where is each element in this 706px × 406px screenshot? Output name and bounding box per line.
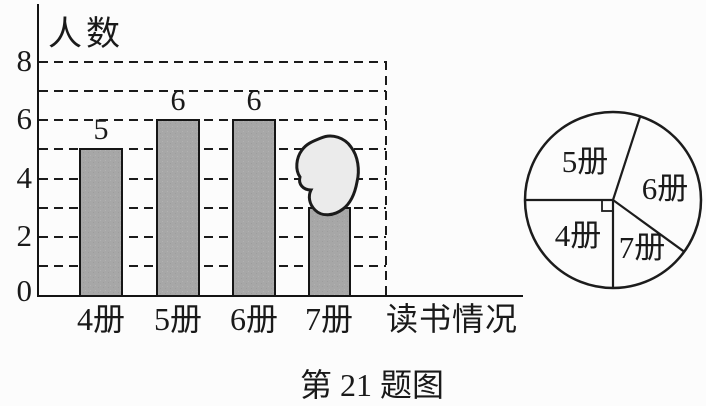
- x-axis-title: 读书情况: [386, 301, 518, 337]
- y-tick-6: 6: [0, 104, 32, 134]
- bar-4ce: [79, 148, 123, 297]
- gridline-8: [39, 61, 386, 63]
- pie-label-4ce: 4册: [555, 218, 602, 253]
- pie-label-5ce: 5册: [562, 144, 609, 179]
- figure-question-21: 人数 8 6 4 2 0 5 6 6 4册 5册 6册 7册 读书情况: [0, 0, 706, 406]
- bar-value-5ce: 6: [148, 86, 208, 116]
- gridline-7: [39, 90, 386, 92]
- pie-label-6ce: 6册: [642, 171, 689, 206]
- grid-right-boundary-dashed: [385, 61, 387, 297]
- y-tick-4: 4: [0, 163, 32, 193]
- ink-blot-icon: [288, 132, 368, 229]
- bar-value-4ce: 5: [71, 115, 131, 145]
- y-axis-title: 人数: [48, 6, 124, 55]
- y-tick-2: 2: [0, 221, 32, 251]
- pie-label-7ce: 7册: [619, 230, 666, 265]
- figure-caption: 第 21 题图: [252, 360, 492, 406]
- y-tick-8: 8: [0, 46, 32, 76]
- bar-5ce: [156, 119, 200, 297]
- pie-chart: 5册 6册 7册 4册: [521, 108, 705, 292]
- cat-label-7ce: 7册: [284, 301, 374, 337]
- bar-6ce: [232, 119, 276, 297]
- y-axis-line: [37, 4, 39, 297]
- bar-value-6ce: 6: [224, 86, 284, 116]
- y-tick-0: 0: [0, 276, 32, 306]
